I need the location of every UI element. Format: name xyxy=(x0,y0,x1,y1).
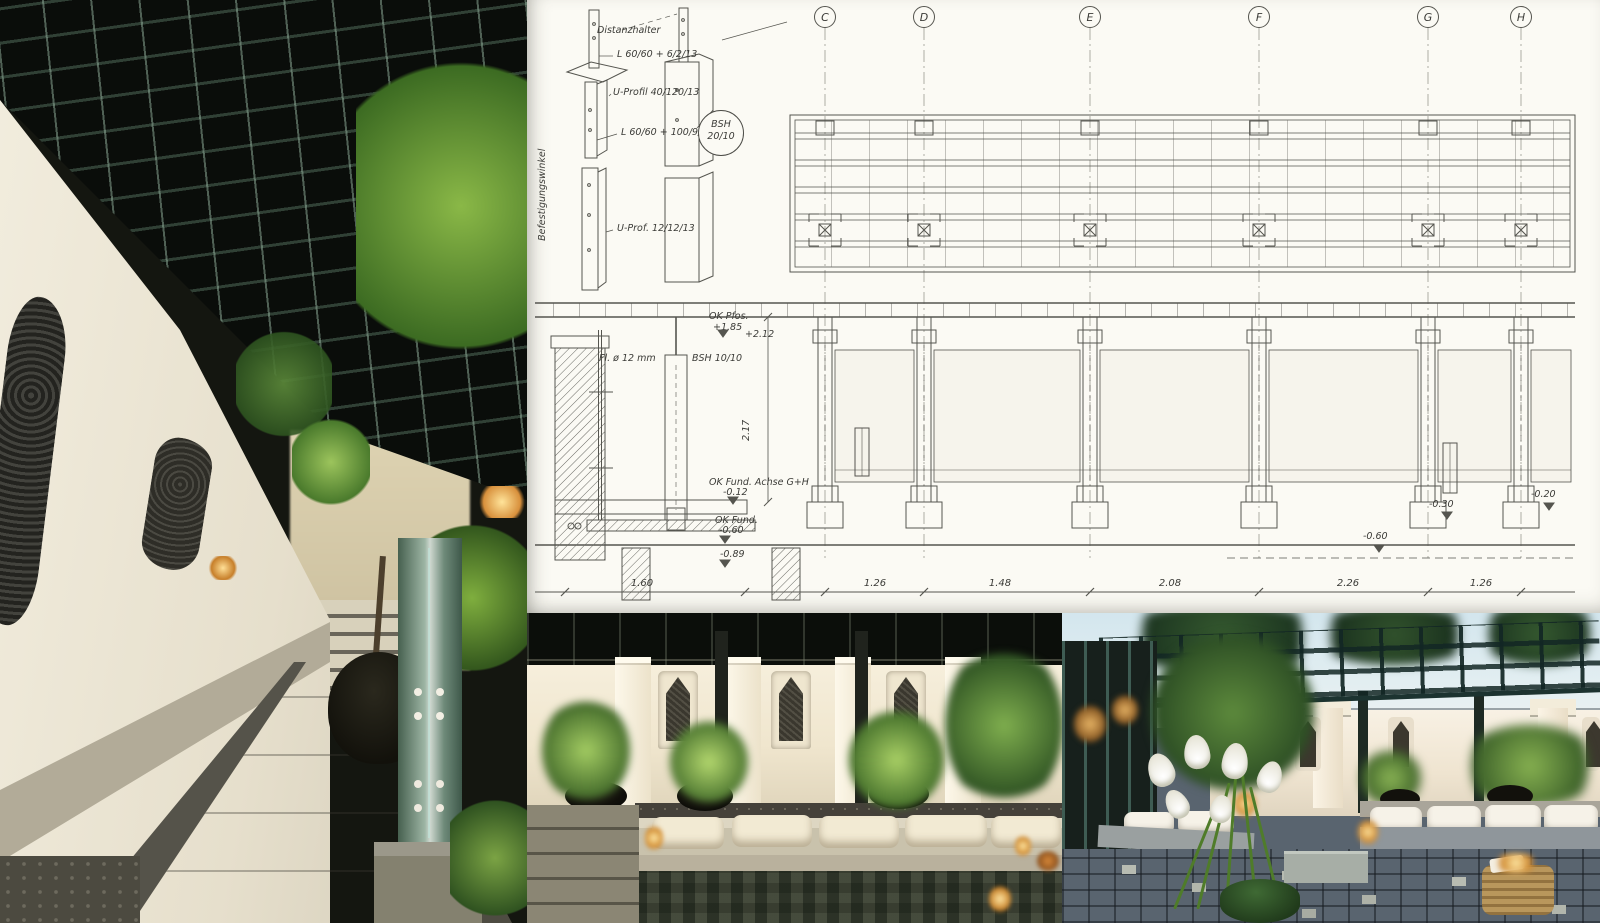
grid-bubble-e: E xyxy=(1079,6,1101,28)
plant-foliage xyxy=(849,711,944,809)
stone-steps-left xyxy=(527,805,639,923)
grid-bubble-c: C xyxy=(814,6,836,28)
steel-post-bolts xyxy=(414,688,422,696)
note-u-prof-small: U-Prof. 12/12/13 xyxy=(617,224,695,235)
note-angle-top: L 60/60 + 6/2/13 xyxy=(617,50,697,61)
collage-canvas: C D E F G H Distanzhalter L 60/60 + 6/2/… xyxy=(0,0,1600,923)
cushion xyxy=(732,815,812,847)
pebble-foreground xyxy=(0,856,140,923)
grid-bubble-d: D xyxy=(913,6,935,28)
warm-light-glow xyxy=(1112,695,1138,725)
note-height-dim: 2.17 xyxy=(742,420,753,441)
dim-5: 2.26 xyxy=(1328,578,1368,589)
plant-foliage xyxy=(670,721,748,803)
note-distance-holder: Distanzhalter xyxy=(597,26,660,37)
candle-glow xyxy=(1015,835,1031,857)
candle-glow-path xyxy=(208,556,238,580)
paving-light-inserts xyxy=(1122,865,1136,874)
foliage-fern xyxy=(450,788,527,923)
candle-glow xyxy=(1494,853,1538,873)
foliage-canopy xyxy=(356,36,527,376)
candle-glow-ledge xyxy=(476,486,527,518)
dim-4: 2.08 xyxy=(1150,578,1190,589)
cushion xyxy=(819,816,899,848)
grid-bubble-f: F xyxy=(1248,6,1270,28)
note-excavation-level: -0.89 xyxy=(720,550,745,561)
candle-glow xyxy=(645,825,663,851)
warm-light-glow xyxy=(1074,705,1106,743)
detail-bubble-bsh: BSH 20/10 xyxy=(698,110,744,156)
dim-3: 1.48 xyxy=(980,578,1020,589)
dim-6: 1.26 xyxy=(1461,578,1501,589)
note-top-of-post-level: +1.85 xyxy=(713,323,742,334)
green-flower-pot xyxy=(1220,879,1300,923)
photo-middle-courtyard-night xyxy=(527,613,1062,923)
note-post-bsh: BSH 10/10 xyxy=(692,354,742,365)
dim-2: 1.26 xyxy=(855,578,895,589)
note-beam-level: +2.12 xyxy=(745,330,774,341)
steel-post-cable xyxy=(428,548,430,838)
photo-left-garden-walkway xyxy=(0,0,527,923)
grid-bubble-g: G xyxy=(1417,6,1439,28)
orange-pillow xyxy=(1037,851,1059,871)
sketch-panel: C D E F G H Distanzhalter L 60/60 + 6/2/… xyxy=(527,0,1600,613)
note-level-right-base: -0.30 xyxy=(1429,500,1454,511)
detail-bubble-line2: 20/10 xyxy=(707,131,734,142)
note-u-profile: U-Profil 40/120/13 xyxy=(613,88,699,99)
cushion xyxy=(652,817,724,849)
candle-lantern-glow xyxy=(1358,819,1378,845)
photo-right-patio-evening xyxy=(1062,613,1600,923)
note-bracket: Befestigungswinkel xyxy=(538,149,549,241)
grid-bubble-h: H xyxy=(1510,6,1532,28)
cushion xyxy=(905,815,987,847)
plant-foliage xyxy=(542,698,630,803)
note-level-right-foot: -0.60 xyxy=(1363,532,1388,543)
foliage-mid xyxy=(292,414,370,510)
dim-1: 1.60 xyxy=(622,578,662,589)
step-stone xyxy=(1284,851,1368,883)
note-foundation-axis-level: -0.12 xyxy=(723,488,748,499)
candle-glow xyxy=(989,885,1011,913)
note-foundation-level: -0.60 xyxy=(719,526,744,537)
note-flat-steel: Fl. ø 12 mm xyxy=(599,354,656,365)
tree-foliage xyxy=(945,643,1062,808)
note-level-right-wall: -0.20 xyxy=(1531,490,1556,501)
detail-bubble-line1: BSH xyxy=(711,119,731,130)
